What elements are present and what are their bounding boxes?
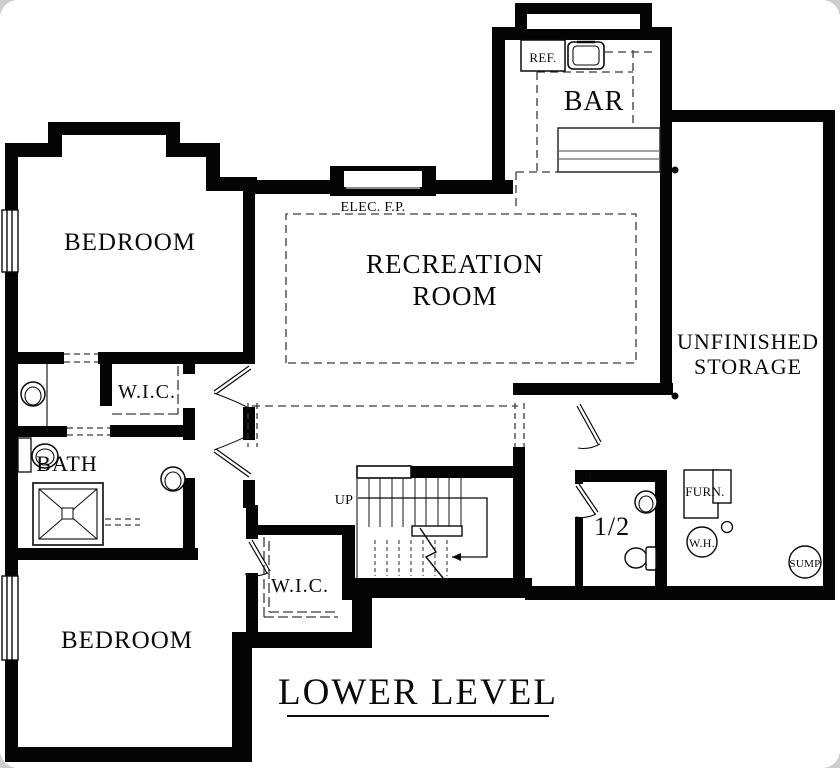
label-electric-fireplace: ELEC. F.P. <box>341 200 406 215</box>
label-stairs-up: UP <box>335 493 354 508</box>
half-bath-toilet-tank <box>646 547 656 570</box>
room-label-bath: BATH <box>36 451 97 476</box>
wall-segment <box>410 466 513 478</box>
support-column <box>672 393 679 400</box>
bath-toilet-bowl <box>165 472 181 490</box>
wall-segment <box>183 478 195 548</box>
support-column <box>672 167 679 174</box>
toilet-powder-bowl <box>25 387 41 405</box>
bath-vanity <box>18 438 31 472</box>
wall-segment <box>575 517 583 587</box>
stair-handrail-top <box>357 466 411 478</box>
room-label-recreation-1: RECREATION <box>366 249 544 279</box>
wall-segment <box>100 364 112 406</box>
wall-segment <box>660 27 672 122</box>
half-bath-sink-basin <box>639 496 653 512</box>
wall-segment <box>660 110 835 122</box>
wall-segment <box>342 525 355 600</box>
wall-segment <box>18 548 198 560</box>
wall-segment <box>515 3 652 14</box>
wall-segment <box>183 408 195 440</box>
wall-segment <box>206 177 257 191</box>
wall-segment <box>525 586 835 600</box>
label-sump: SUMP <box>789 558 820 570</box>
wall-segment <box>660 122 672 395</box>
plan-title-group: LOWER LEVEL <box>278 672 558 716</box>
wall-segment <box>513 447 525 587</box>
wall-segment <box>352 578 532 598</box>
wall-segment <box>48 122 180 135</box>
wall-segment <box>232 632 252 762</box>
floor-plan-svg: BEDROOM RECREATION ROOM BAR UNFINISHED S… <box>0 0 840 768</box>
wall-segment <box>655 470 667 592</box>
room-label-unfinished-2: STORAGE <box>694 354 802 379</box>
wall-segment <box>243 480 255 508</box>
shower-drain <box>62 508 73 519</box>
wall-segment <box>18 352 64 364</box>
wall-segment <box>492 27 505 194</box>
stair-handrail-middle <box>412 526 462 536</box>
wall-segment <box>258 525 354 535</box>
plan-title: LOWER LEVEL <box>278 672 558 713</box>
window-bedroom-upper <box>2 210 18 272</box>
half-bath-toilet-bowl <box>625 548 647 568</box>
wall-segment <box>183 364 195 374</box>
bar-counter <box>558 128 660 172</box>
floor-drain <box>722 522 733 533</box>
room-label-wic-upper: W.I.C. <box>118 381 176 403</box>
wall-segment <box>5 747 252 762</box>
room-label-wic-lower: W.I.C. <box>271 575 329 597</box>
label-furnace: FURN. <box>685 484 724 499</box>
room-label-bar: BAR <box>564 86 625 117</box>
wall-segment <box>823 110 835 600</box>
wall-segment <box>110 425 195 437</box>
room-label-unfinished-1: UNFINISHED <box>677 329 819 354</box>
wall-segment <box>246 505 258 539</box>
label-water-heater: W.H. <box>689 536 715 550</box>
window-bedroom-lower <box>2 576 18 660</box>
window-well-niche <box>527 14 640 29</box>
room-label-half-bath: 1/2 <box>594 512 630 541</box>
wall-segment <box>98 352 255 364</box>
wall-segment <box>246 573 258 635</box>
wall-segment <box>575 470 667 482</box>
wall-segment <box>243 187 255 357</box>
wall-segment <box>575 470 583 484</box>
fireplace-niche <box>344 171 422 187</box>
room-label-bedroom-upper: BEDROOM <box>64 229 196 256</box>
floor-plan-image: BEDROOM RECREATION ROOM BAR UNFINISHED S… <box>0 0 840 768</box>
wall-segment <box>513 383 673 395</box>
room-label-bedroom-lower: BEDROOM <box>61 627 193 654</box>
wall-segment <box>18 426 67 437</box>
label-refrigerator: REF. <box>529 50 556 65</box>
room-label-recreation-2: ROOM <box>412 281 497 311</box>
